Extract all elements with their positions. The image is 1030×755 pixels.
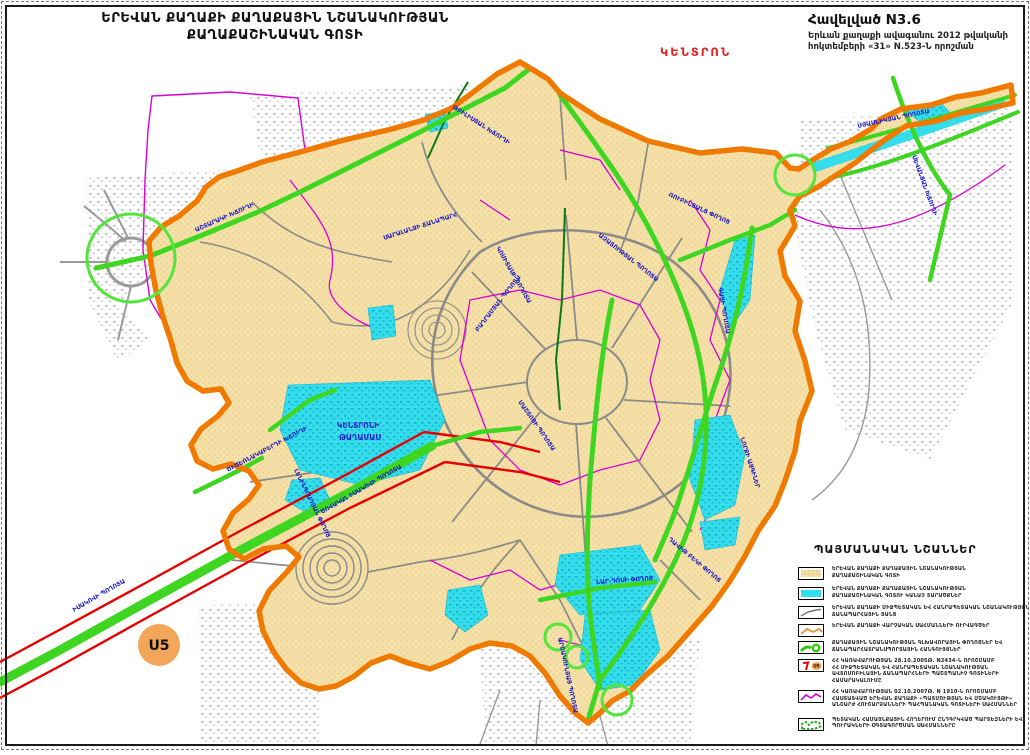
swatch-zone-fill <box>798 567 824 580</box>
swatch-green-area-fill <box>798 587 824 600</box>
svg-text:ԹԱՂԱՄԱՍ: ԹԱՂԱՄԱՍ <box>339 433 381 442</box>
legend-text-line: ԵՐԵՎԱՆ ՔԱՂԱՔԻ ՔԱՂԱՔԱՅԻՆ ՆՇԱՆԱԿՈՒԹՅԱՆ <box>832 586 966 593</box>
legend-row-road-network: ԵՐԵՎԱՆ ՔԱՂԱՔԻ ՄԻՋՊԵՏԱԿԱՆ ԵՎ ՀԱՆՐԱՊԵՏԱԿԱՆ… <box>798 605 1026 619</box>
legend-text-line: ԵՐԵՎԱՆ ՔԱՂԱՔԻ ՔԱՂԱՔԱՅԻՆ ՆՇԱՆԱԿՈՒԹՅԱՆ <box>832 566 966 573</box>
yerevan-zoning-map-page: { "header": { "title_line1": "ԵՐԵՎԱՆ ՔԱՂ… <box>0 0 1030 751</box>
legend-row-green-areas: ԵՐԵՎԱՆ ՔԱՂԱՔԻ ՔԱՂԱՔԱՅԻՆ ՆՇԱՆԱԿՈՒԹՅԱՆ ՔԱՂ… <box>798 586 1026 600</box>
legend-text-line: ՃԱՆԱՊԱՐՀԱՏՐԱՆՍՊՈՐՏԱՅԻՆ ՀԱՆԳՈՒՅՑՆԵՐ <box>832 647 1002 654</box>
legend-title: ՊԱՅՄԱՆԱԿԱՆ ՆՇԱՆՆԵՐ <box>814 543 1026 556</box>
swatch-highway-u5: U5 <box>798 659 824 672</box>
legend-row-park-boundary: ՊԵՏԱԿԱՆ ՀԱՄԱՅՆՔԱՅԻՆ ՀՈՂԵՐՈՒՄ ԸՆԴԳՐԿՎԱԾ Պ… <box>798 717 1026 731</box>
page-title-line2: ՔԱՂԱՔԱՇԻՆԱԿԱՆ ԳՈՏԻ <box>40 27 510 44</box>
legend: ՊԱՅՄԱՆԱԿԱՆ ՆՇԱՆՆԵՐ ԵՐԵՎԱՆ ՔԱՂԱՔԻ ՔԱՂԱՔԱՅ… <box>798 543 1026 731</box>
legend-text-line: ՀՀ ԿԱՌԱՎԱՐՈՒԹՅԱՆ 28.10.2005Թ. N2434-Ն ՈՐ… <box>832 658 999 665</box>
swatch-road-line <box>798 606 824 619</box>
legend-row-admin-boundary: ԵՐԵՎԱՆ ՔԱՂԱՔԻ ՎԱՐՉԱԿԱՆ ՍԱՀՄԱՆՆԵՐԻ ՈՒՐՎԱԳ… <box>798 623 1026 637</box>
page-title-line1: ԵՐԵՎԱՆ ՔԱՂԱՔԻ ՔԱՂԱՔԱՅԻՆ ՆՇԱՆԱԿՈՒԹՅԱՆ <box>40 10 510 27</box>
legend-text-line: ՔԱՂԱՔԱՇԻՆԱԿԱՆ ԳՈՏՈՒ ԿԱՆԱՉ ՏԱՐԱԾՔՆԵՐ <box>832 593 966 600</box>
legend-row-green-road: ՔԱՂԱՔԱՅԻՆ ՆՇԱՆԱԿՈՒԹՅԱՆ ԳԼԽԱՎՈՐԱՅԻՆ ՓՈՂՈՑ… <box>798 640 1026 654</box>
appendix-note: Հավելված N3.6 Երևան քաղաքի ավագանու 2012… <box>808 12 1018 53</box>
u5-badge-label: U5 <box>148 638 169 654</box>
swatch-green-road <box>798 641 824 654</box>
legend-text-line: ԱՎՏՈՄՈԲԻԼԱՅԻՆ ՃԱՆԱՊԱՐՀՆԵՐԻ ՊԱՇՏՊԱՆԻՉ ԳՈՏ… <box>832 671 999 678</box>
legend-row-monument-zone: ՀՀ ԿԱՌԱՎԱՐՈՒԹՅԱՆ 02.10.2007Թ. N 1910-Ն Ո… <box>798 689 1026 709</box>
legend-text-line: ՃԱՆԱՊԱՐՀԱՅԻՆ ՑԱՆՑ <box>832 612 1029 619</box>
svg-text:ԿԵՆՏՐՈՆԻ: ԿԵՆՏՐՈՆԻ <box>337 421 379 430</box>
legend-text-line: ՀՀ ԿԱՌԱՎԱՐՈՒԹՅԱՆ 02.10.2007Թ. N 1910-Ն Ո… <box>832 689 1017 696</box>
page-title: ԵՐԵՎԱՆ ՔԱՂԱՔԻ ՔԱՂԱՔԱՅԻՆ ՆՇԱՆԱԿՈՒԹՅԱՆ ՔԱՂ… <box>40 10 510 44</box>
u5-badge: U5 <box>138 624 180 666</box>
svg-text:U5: U5 <box>813 664 819 669</box>
legend-text-line: ՀԱՄԱՐԱԿԱԼՈՒՄԸ <box>832 678 999 685</box>
swatch-admin-line <box>798 624 824 637</box>
legend-row-zone: ԵՐԵՎԱՆ ՔԱՂԱՔԻ ՔԱՂԱՔԱՅԻՆ ՆՇԱՆԱԿՈՒԹՅԱՆ ՔԱՂ… <box>798 566 1026 580</box>
appendix-line1: Երևան քաղաքի ավագանու 2012 թվականի <box>808 31 1018 42</box>
legend-text-line: ԱՆՇԱՐԺ ՀՈՒՇԱՐՁԱՆՆԵՐԻ ՊԱՀՊԱՆԱԿԱՆ ԳՈՏԻՆԵՐԻ… <box>832 702 1017 709</box>
swatch-park-boundary <box>798 718 824 731</box>
legend-text-line: ՊՈՒՐԱԿՆԵՐԻ ՕԳՏԱԳՈՐԾՄԱՆ ՍԱՀՄԱՆՆԵՐԸ <box>832 723 1022 730</box>
center-district-banner: ԿԵՆՏՐՈՆ <box>660 45 731 59</box>
appendix-line2: հոկտեմբերի «31» N.523-Ն որոշման <box>808 42 1018 53</box>
swatch-monument-line <box>798 690 824 703</box>
appendix-title: Հավելված N3.6 <box>808 12 1018 28</box>
legend-row-highway-u5: U5 ՀՀ ԿԱՌԱՎԱՐՈՒԹՅԱՆ 28.10.2005Թ. N2434-Ն… <box>798 658 1026 684</box>
legend-text-line: ՔԱՂԱՔԱՅԻՆ ՆՇԱՆԱԿՈՒԹՅԱՆ ԳԼԽԱՎՈՐԱՅԻՆ ՓՈՂՈՑ… <box>832 640 1002 647</box>
legend-text-line: ՔԱՂԱՔԱՇԻՆԱԿԱՆ ԳՈՏԻ <box>832 573 966 580</box>
legend-text-line: ԵՐԵՎԱՆ ՔԱՂԱՔԻ ՎԱՐՉԱԿԱՆ ՍԱՀՄԱՆՆԵՐԻ ՈՒՐՎԱԳ… <box>832 623 990 630</box>
legend-text-line: ԵՐԵՎԱՆ ՔԱՂԱՔԻ ՄԻՋՊԵՏԱԿԱՆ ԵՎ ՀԱՆՐԱՊԵՏԱԿԱՆ… <box>832 605 1029 612</box>
